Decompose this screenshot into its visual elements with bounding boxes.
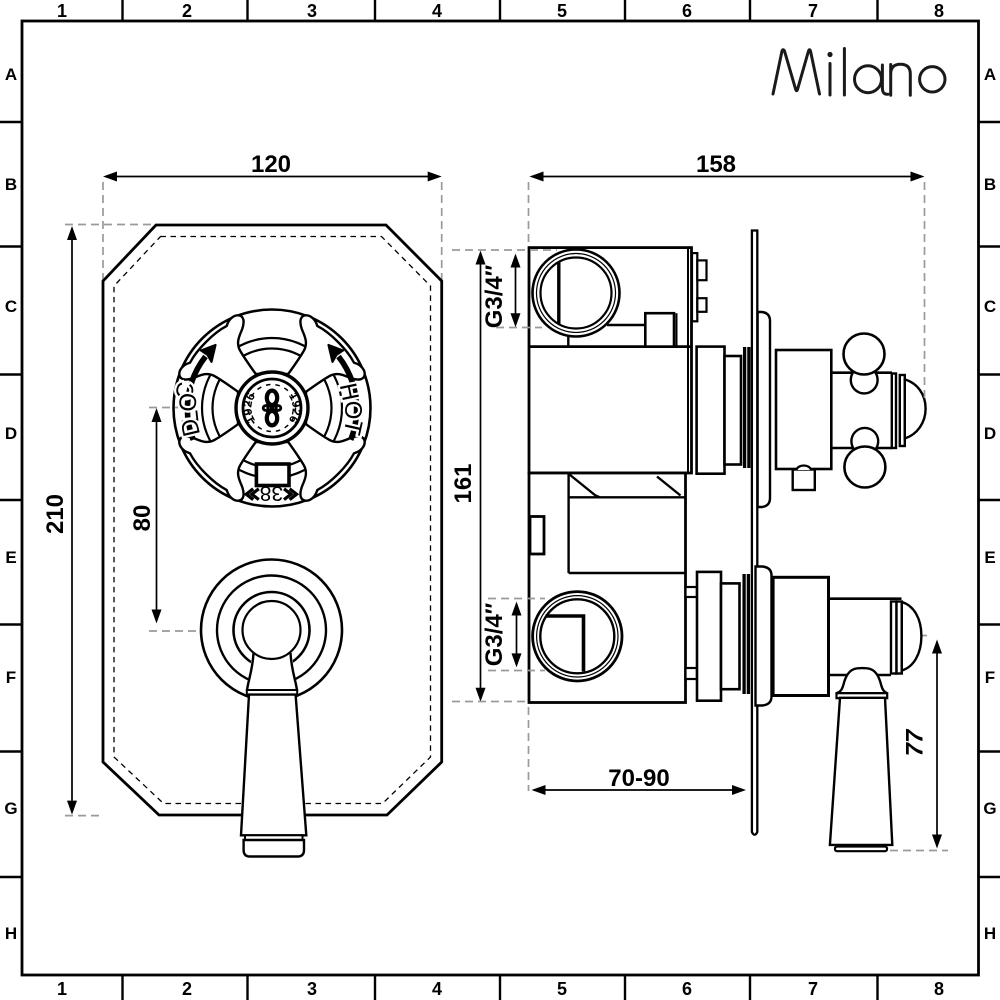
svg-text:210: 210: [42, 494, 69, 534]
svg-text:G3/4″: G3/4″: [481, 264, 508, 328]
svg-text:8: 8: [934, 1, 944, 21]
svg-text:F: F: [985, 668, 995, 687]
svg-text:G: G: [4, 799, 17, 818]
svg-text:5: 5: [557, 1, 567, 21]
svg-text:6: 6: [682, 1, 692, 21]
svg-text:2: 2: [182, 1, 192, 21]
svg-text:80: 80: [129, 505, 156, 532]
svg-text:7: 7: [808, 1, 818, 21]
svg-text:C: C: [5, 297, 17, 316]
svg-text:4: 4: [432, 979, 442, 999]
svg-text:120: 120: [251, 151, 291, 178]
svg-text:5: 5: [557, 979, 567, 999]
svg-text:4: 4: [432, 1, 442, 21]
svg-text:E: E: [5, 548, 16, 567]
svg-text:3: 3: [307, 979, 317, 999]
svg-text:H: H: [984, 924, 996, 943]
svg-text:1: 1: [57, 1, 67, 21]
svg-text:B: B: [984, 175, 996, 194]
svg-text:8: 8: [934, 979, 944, 999]
svg-text:161: 161: [450, 463, 477, 503]
svg-text:H: H: [5, 924, 17, 943]
svg-text:A: A: [984, 65, 996, 84]
svg-text:D: D: [984, 424, 996, 443]
svg-text:158: 158: [696, 151, 736, 178]
svg-text:G: G: [983, 799, 996, 818]
svg-text:1: 1: [57, 979, 67, 999]
svg-text:3: 3: [307, 1, 317, 21]
svg-text:F: F: [6, 668, 16, 687]
svg-text:7: 7: [808, 979, 818, 999]
svg-text:A: A: [5, 65, 17, 84]
svg-text:B: B: [5, 175, 17, 194]
svg-text:77: 77: [902, 728, 929, 756]
svg-text:D: D: [5, 424, 17, 443]
svg-text:70-90: 70-90: [608, 765, 669, 792]
svg-text:2: 2: [182, 979, 192, 999]
svg-text:G3/4″: G3/4″: [481, 602, 508, 666]
svg-text:6: 6: [682, 979, 692, 999]
svg-text:E: E: [984, 548, 995, 567]
svg-text:C: C: [984, 297, 996, 316]
svg-text:38: 38: [260, 482, 283, 505]
